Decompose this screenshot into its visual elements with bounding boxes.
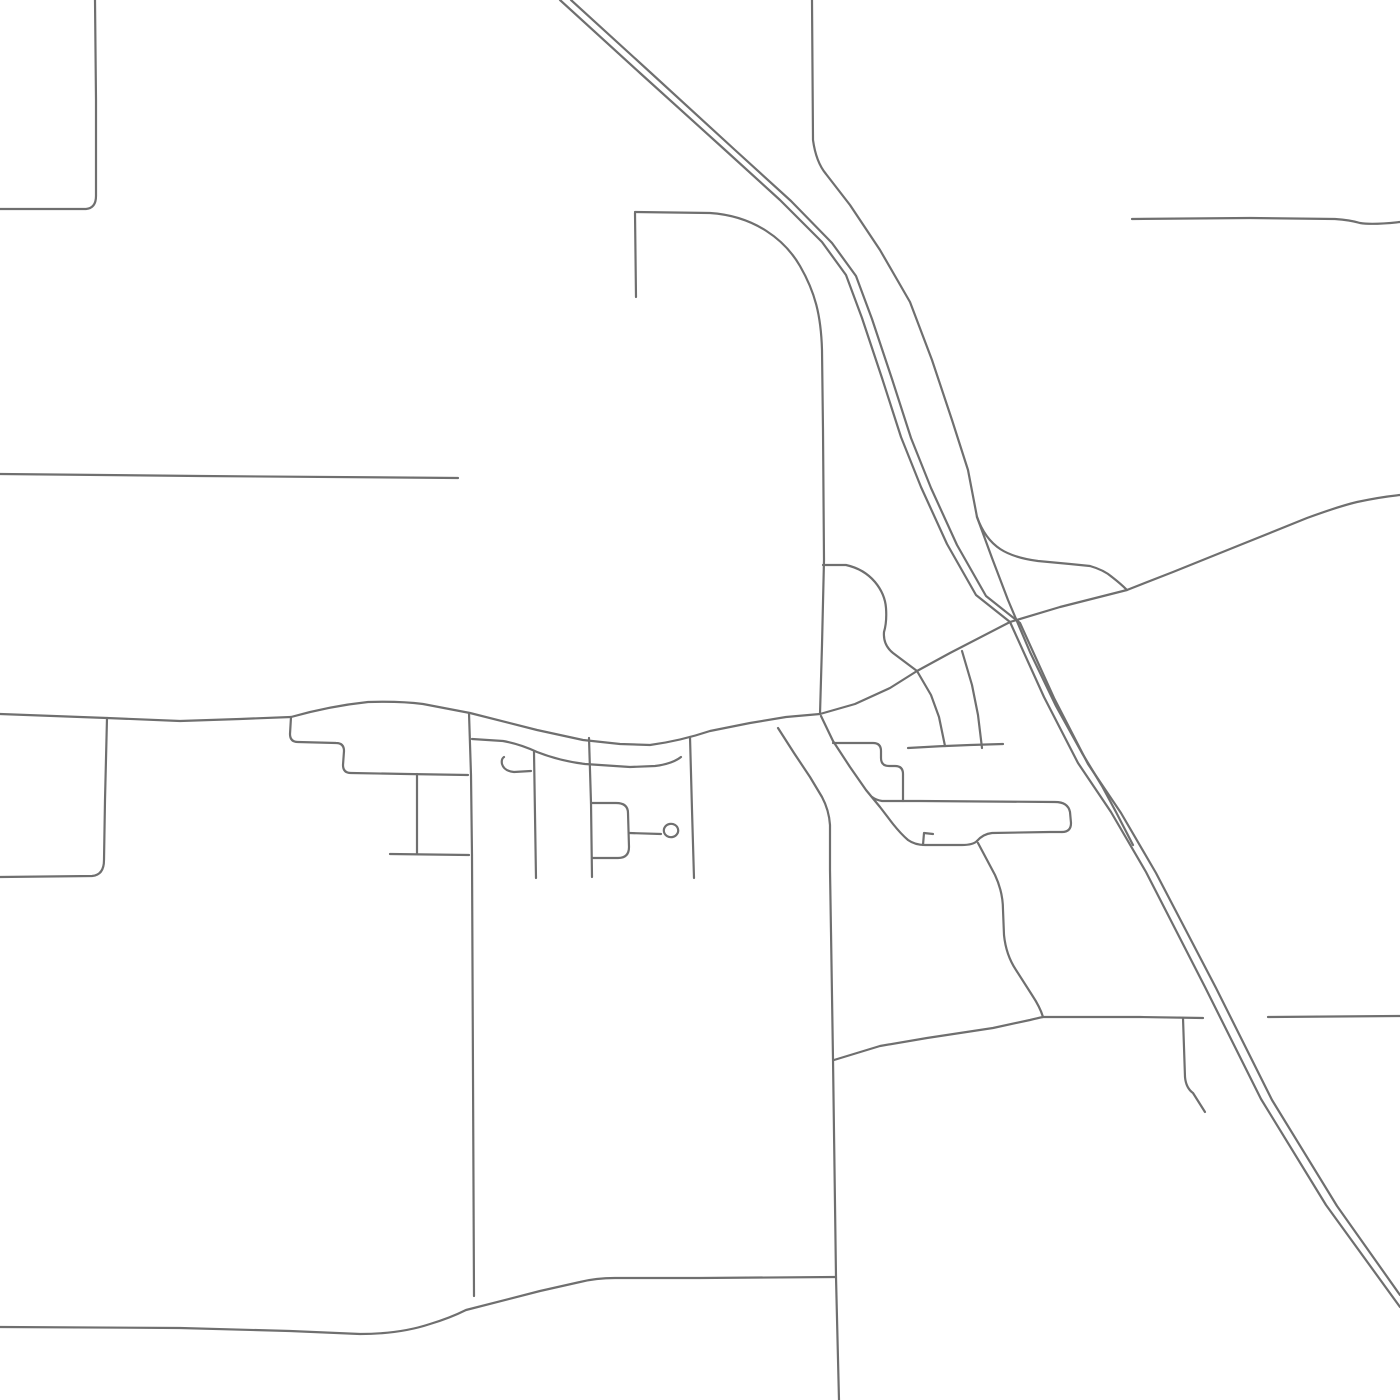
map-svg <box>0 0 1400 1400</box>
road-culdesac-stem <box>629 833 661 834</box>
road-top-center-stub <box>635 213 636 297</box>
road-y854-road <box>390 854 469 855</box>
road-southeast-road-east-of-highway <box>1268 1016 1400 1017</box>
map-background <box>0 0 1400 1400</box>
map-viewport[interactable] <box>0 0 1400 1400</box>
